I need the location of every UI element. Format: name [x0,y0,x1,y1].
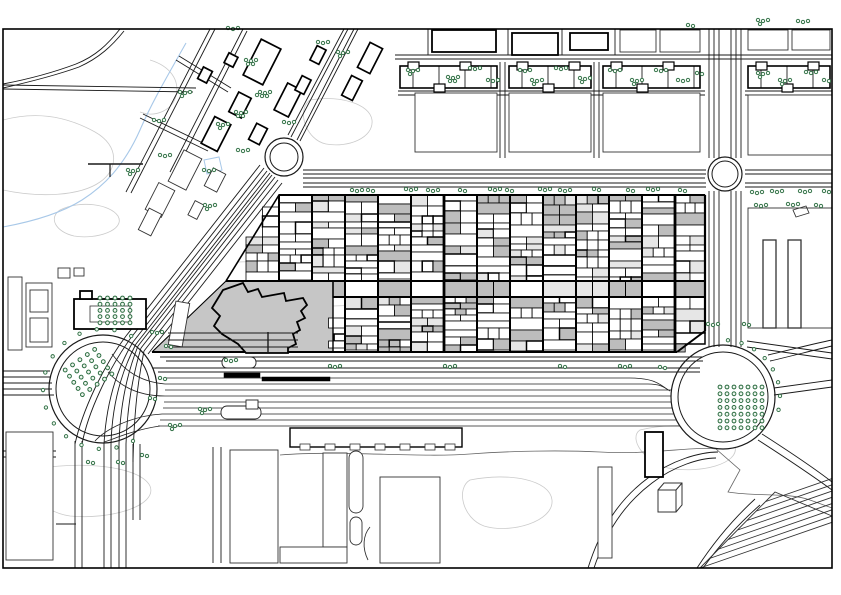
site-plan-drawing [0,0,841,595]
hatched-zone [700,479,832,568]
cad-site-plan-viewport [0,0,841,595]
